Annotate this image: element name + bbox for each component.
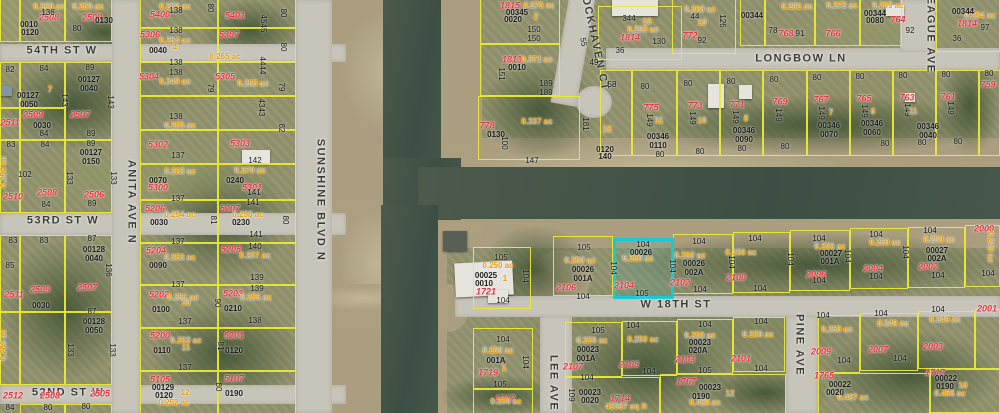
parcel-outline[interactable]	[480, 44, 560, 96]
parcel-outline[interactable]	[473, 389, 533, 413]
parcel-outline[interactable]	[218, 130, 296, 164]
parcel-outline[interactable]	[860, 0, 902, 46]
parcel-outline[interactable]	[733, 232, 790, 293]
parcel-outline[interactable]	[818, 315, 860, 373]
parcel-outline[interactable]	[20, 312, 65, 385]
parcel-outline[interactable]	[0, 108, 20, 140]
parcel-outline[interactable]	[936, 70, 979, 156]
parcel-outline[interactable]	[480, 0, 560, 44]
parcel-outline[interactable]	[20, 404, 65, 413]
parcel-outline[interactable]	[140, 285, 218, 328]
parcel-outline[interactable]	[672, 0, 736, 54]
parcel-outline[interactable]	[850, 70, 893, 156]
parcel-outline[interactable]	[20, 108, 65, 140]
parcel-outline[interactable]	[20, 0, 65, 42]
parcel-outline[interactable]	[0, 235, 20, 312]
parcel-outline[interactable]	[65, 62, 112, 140]
parcel-outline[interactable]	[140, 200, 218, 243]
parcel-outline[interactable]	[979, 70, 1000, 156]
parcel-outline[interactable]	[0, 140, 20, 213]
parcel-outline[interactable]	[930, 369, 1000, 413]
parcel-outline[interactable]	[740, 0, 765, 46]
parcel-outline[interactable]	[20, 62, 65, 108]
parcel-outline[interactable]	[0, 62, 20, 108]
parcel-outline[interactable]	[677, 70, 720, 156]
parcel-outline[interactable]	[850, 228, 908, 289]
parcel-outline[interactable]	[733, 317, 785, 372]
parcel-outline[interactable]	[65, 235, 112, 312]
parcel-outline[interactable]	[65, 404, 112, 413]
parcel-outline[interactable]	[140, 164, 218, 200]
parcel-outline[interactable]	[622, 321, 677, 376]
parcel-outline[interactable]	[818, 373, 930, 413]
parcel-outline[interactable]	[478, 96, 580, 160]
parcel-outline[interactable]	[936, 0, 1000, 52]
parcel-outline[interactable]	[473, 328, 533, 389]
parcel-outline[interactable]	[218, 164, 296, 200]
parcel-outline[interactable]	[660, 374, 786, 413]
parcel-outline[interactable]	[140, 0, 218, 28]
map-canvas[interactable]: 54TH ST W53RD ST W52ND ST WANITA AVE NSU…	[0, 0, 1000, 413]
parcel-outline[interactable]	[65, 312, 112, 385]
parcel-outline[interactable]	[140, 96, 218, 130]
parcel-outline[interactable]	[0, 312, 20, 385]
parcel-outline[interactable]	[473, 247, 531, 309]
parcel-outline[interactable]	[565, 322, 622, 377]
parcel-outline[interactable]	[908, 227, 965, 288]
parcel-outline[interactable]	[218, 371, 296, 413]
parcel-outline[interactable]	[0, 0, 20, 42]
parcel-outline[interactable]	[860, 313, 918, 371]
parcel-outline[interactable]	[893, 70, 936, 156]
parcel-outline[interactable]	[673, 234, 733, 294]
parcel-outline[interactable]	[218, 0, 296, 28]
parcel-outline[interactable]	[565, 377, 660, 413]
parcel-outline[interactable]	[65, 0, 112, 42]
parcel-outline[interactable]	[218, 62, 296, 96]
parcel-outline[interactable]	[218, 200, 296, 243]
parcel-outline[interactable]	[765, 0, 815, 46]
parcel-outline[interactable]	[975, 309, 1000, 369]
parcel-outline[interactable]	[553, 236, 613, 296]
parcel-outline[interactable]	[218, 28, 296, 62]
parcel-outline[interactable]	[65, 140, 112, 213]
parcel-layer	[0, 0, 1000, 413]
parcel-outline[interactable]	[600, 70, 632, 156]
parcel-outline[interactable]	[598, 6, 682, 60]
parcel-outline[interactable]	[140, 328, 218, 371]
parcel-outline[interactable]	[632, 70, 677, 156]
parcel-outline[interactable]	[965, 225, 1000, 287]
parcel-outline[interactable]	[218, 328, 296, 371]
parcel-outline[interactable]	[807, 70, 850, 156]
parcel-outline[interactable]	[763, 70, 807, 156]
parcel-outline[interactable]	[677, 319, 733, 374]
parcel-outline[interactable]	[140, 243, 218, 285]
parcel-outline[interactable]	[218, 285, 296, 328]
parcel-outline[interactable]	[20, 140, 65, 213]
parcel-outline[interactable]	[140, 130, 218, 164]
highlighted-parcel[interactable]	[613, 238, 674, 299]
parcel-outline[interactable]	[140, 371, 218, 413]
parcel-outline[interactable]	[140, 28, 218, 62]
parcel-outline[interactable]	[218, 96, 296, 130]
parcel-outline[interactable]	[815, 0, 860, 46]
parcel-outline[interactable]	[918, 311, 975, 369]
parcel-outline[interactable]	[140, 62, 218, 96]
parcel-outline[interactable]	[218, 243, 296, 285]
parcel-outline[interactable]	[20, 235, 65, 312]
parcel-outline[interactable]	[720, 70, 763, 156]
parcel-outline[interactable]	[790, 230, 850, 291]
